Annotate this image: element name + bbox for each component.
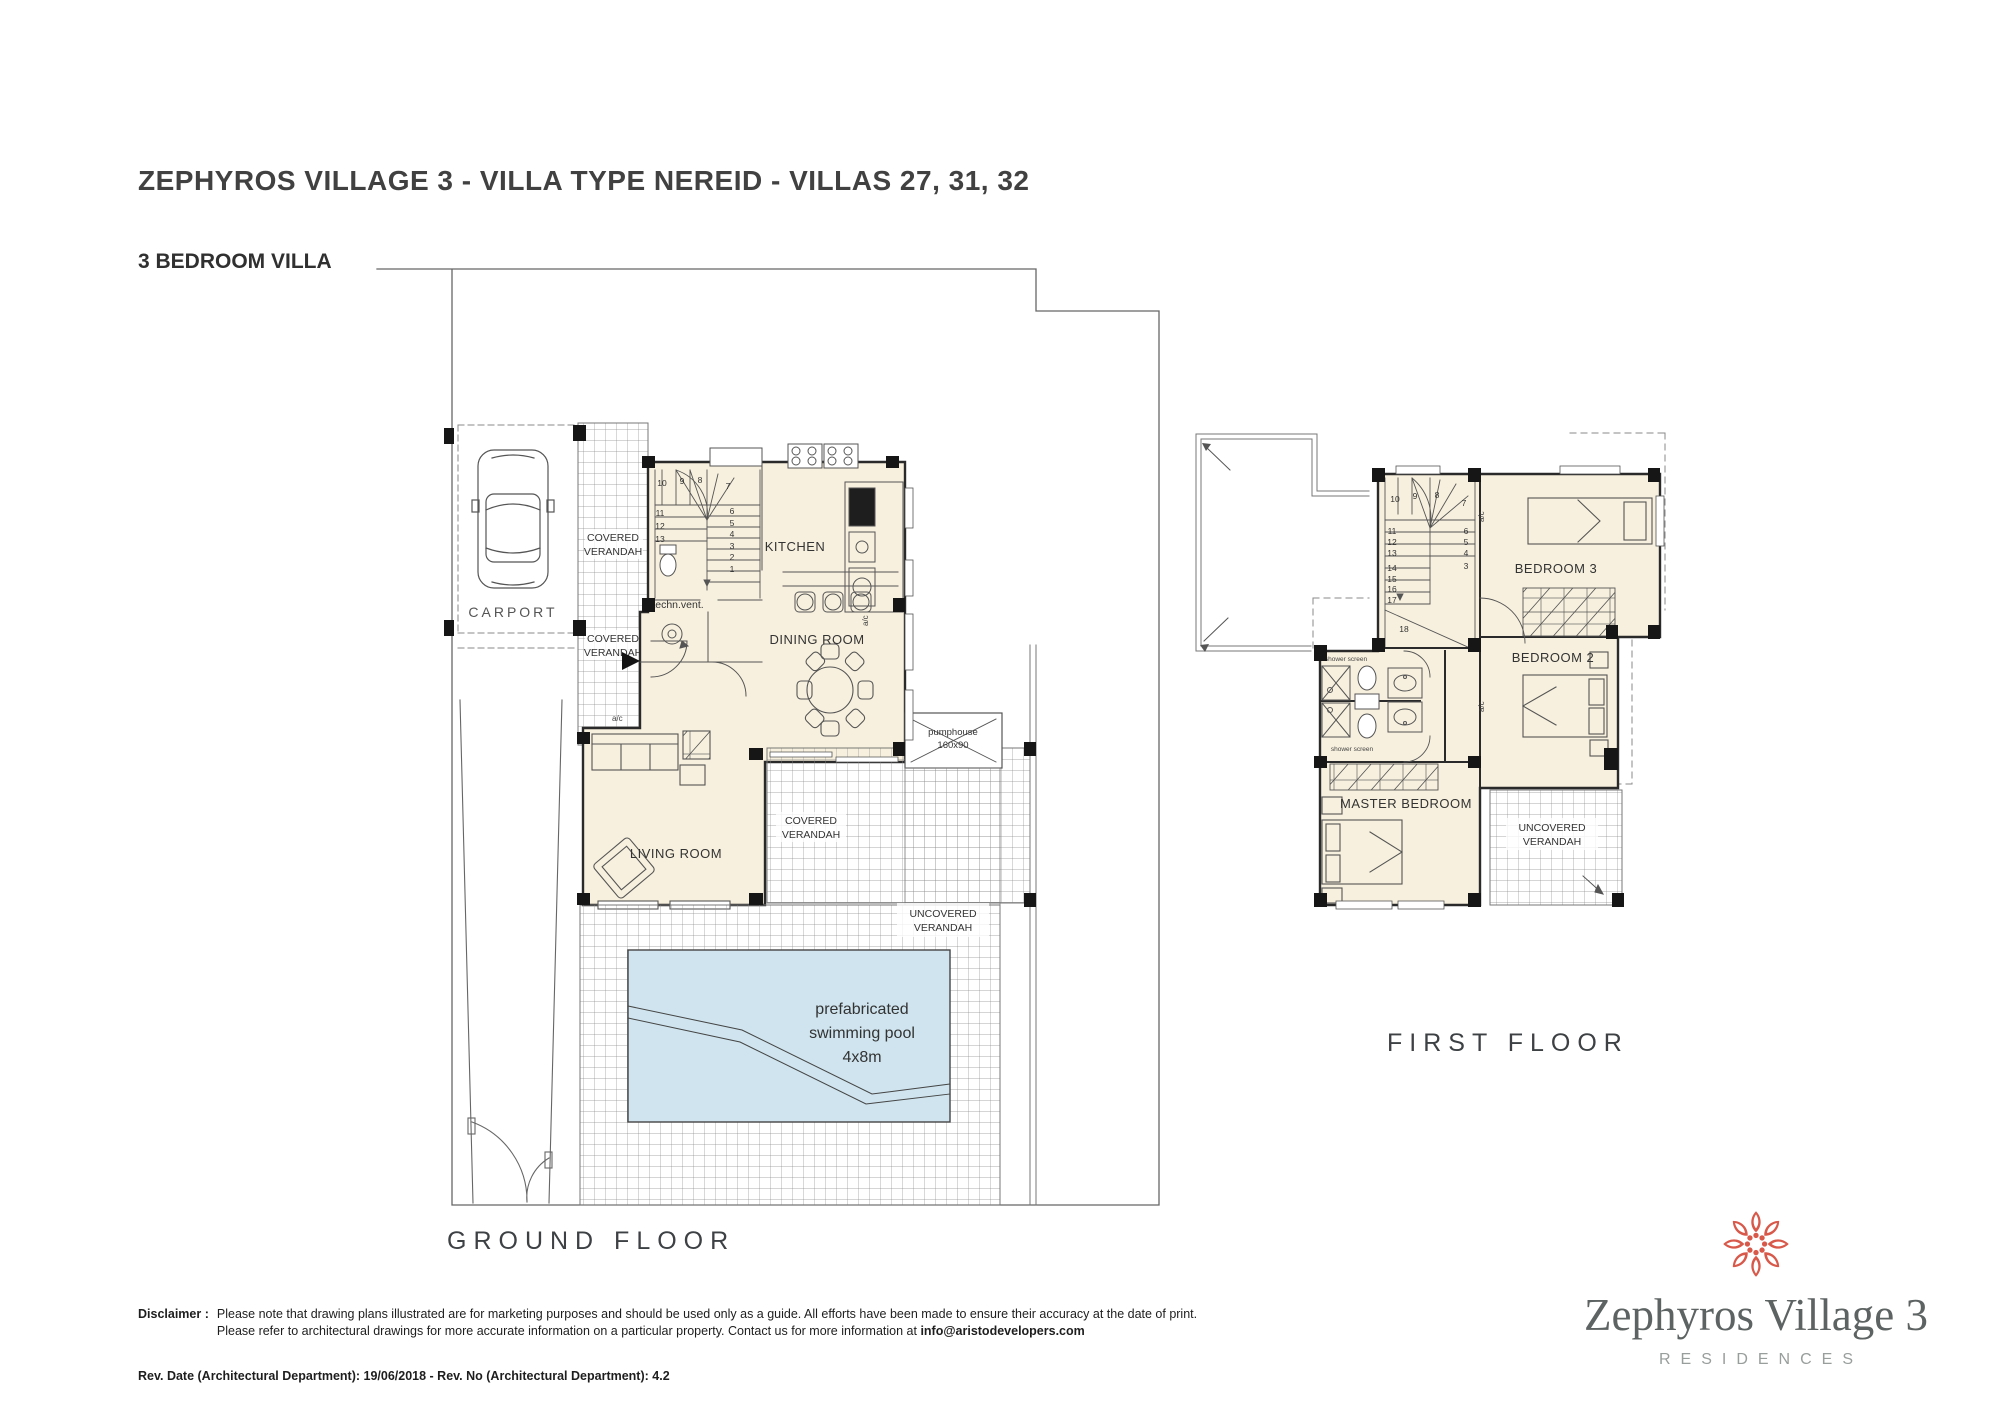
stair-number: 10 [1390,494,1400,504]
logo-name: Zephyros Village 3 [1584,1289,1928,1341]
logo-flower-icon [1717,1205,1795,1283]
logo: Zephyros Village 3 RESIDENCES [1586,1205,1926,1369]
window-sills [905,488,913,740]
ac-label: a/c [612,714,623,723]
shower-screen-label: shower screen [1325,656,1368,663]
disclaimer-email: info@aristodevelopers.com [920,1324,1084,1338]
stair-number: 6 [730,506,735,516]
pumphouse-label: pumphouse [928,727,978,738]
stair-number: 17 [1387,595,1397,605]
kitchen-label: KITCHEN [765,539,826,554]
stair-number: 7 [1462,498,1467,508]
wardrobe-icon [1330,764,1438,790]
pumphouse-label: 160x90 [937,740,968,751]
ground-floor-caption: GROUND FLOOR [447,1227,735,1256]
pool-label: 4x8m [842,1049,881,1066]
stair-number: 7 [726,481,731,491]
pumphouse: pumphouse 160x90 [905,713,1002,768]
stair-number: 5 [1464,537,1469,547]
bedroom3-label: BEDROOM 3 [1515,561,1598,576]
stair-number: 8 [698,475,703,485]
stair-number: 16 [1387,584,1397,594]
stair-number: 3 [730,541,735,551]
covered-verandah-label: VERANDAH [584,647,642,659]
disclaimer: Disclaimer : Please note that drawing pl… [138,1306,1298,1340]
disclaimer-line1: Please note that drawing plans illustrat… [217,1307,1197,1321]
logo-tagline: RESIDENCES [1649,1351,1863,1369]
carport-label: CARPORT [468,604,557,620]
covered-verandah-label: COVERED [587,532,639,544]
stair-number: 4 [1464,548,1469,558]
stair-number: 11 [1388,526,1397,536]
stair-number: 14 [1387,563,1397,573]
stair-number: 6 [1464,526,1469,536]
living-room-label: LIVING ROOM [630,846,722,861]
driveway [460,700,562,1203]
stair-number: 13 [1387,548,1397,558]
stair-number: 8 [1435,490,1440,500]
disclaimer-label: Disclaimer : [138,1306,209,1340]
covered-verandah-label: COVERED [587,633,639,645]
floor-plan-sheet: ZEPHYROS VILLAGE 3 - VILLA TYPE NEREID -… [0,0,2000,1414]
ac-label: a/c [1477,701,1486,712]
revision-note: Rev. Date (Architectural Department): 19… [138,1369,670,1383]
first-floor-caption: FIRST FLOOR [1387,1029,1629,1058]
stair-number: 5 [730,518,735,528]
stair-number: 10 [657,478,667,488]
stair-number: 15 [1387,574,1397,584]
floor-plans-drawing: CARPORT COVERED VERANDAH COVERED VERANDA… [0,0,2000,1414]
stair-number: 12 [655,521,665,531]
car-icon [472,450,554,588]
pool-label: prefabricated [815,1001,908,1018]
covered-verandah-label: COVERED [785,815,837,827]
stair-number: 1 [730,564,735,574]
stair-number: 11 [656,508,665,518]
uncovered-verandah-label: UNCOVERED [909,908,977,920]
stair-number: 4 [730,529,735,539]
stair-number: 9 [680,476,685,486]
disclaimer-text: Please note that drawing plans illustrat… [217,1306,1197,1340]
master-bedroom-label: MASTER BEDROOM [1340,796,1472,811]
uncovered-verandah-label: VERANDAH [1523,836,1581,848]
stair-number: 18 [1399,624,1409,634]
stair-number: 12 [1387,537,1397,547]
stair-number: 9 [1413,491,1418,501]
covered-verandah-strip [578,423,648,745]
disclaimer-line2: Please refer to architectural drawings f… [217,1324,921,1338]
covered-verandah-label: VERANDAH [584,546,642,558]
first-floor-plan: 10 9 8 7 11 12 13 14 15 16 17 6 5 4 3 18 [1196,433,1665,909]
pool-label: swimming pool [809,1025,915,1042]
ac-label: a/c [861,615,870,626]
ground-floor-plan: CARPORT COVERED VERANDAH COVERED VERANDA… [377,269,1159,1205]
ac-label: a/c [1477,511,1486,522]
stair-number: 3 [1464,561,1469,571]
uncovered-verandah-label: VERANDAH [914,922,972,934]
techn-vent-label: techn.vent. [652,599,703,611]
dining-room-label: DINING ROOM [769,632,864,647]
shower-screen-label: shower screen [1331,746,1374,753]
covered-verandah-label: VERANDAH [782,829,840,841]
bedroom2-label: BEDROOM 2 [1512,650,1595,665]
stair-number: 2 [730,552,735,562]
uncovered-verandah-label: UNCOVERED [1518,822,1586,834]
stair-number: 13 [655,534,665,544]
swimming-pool: prefabricated swimming pool 4x8m [628,950,950,1122]
